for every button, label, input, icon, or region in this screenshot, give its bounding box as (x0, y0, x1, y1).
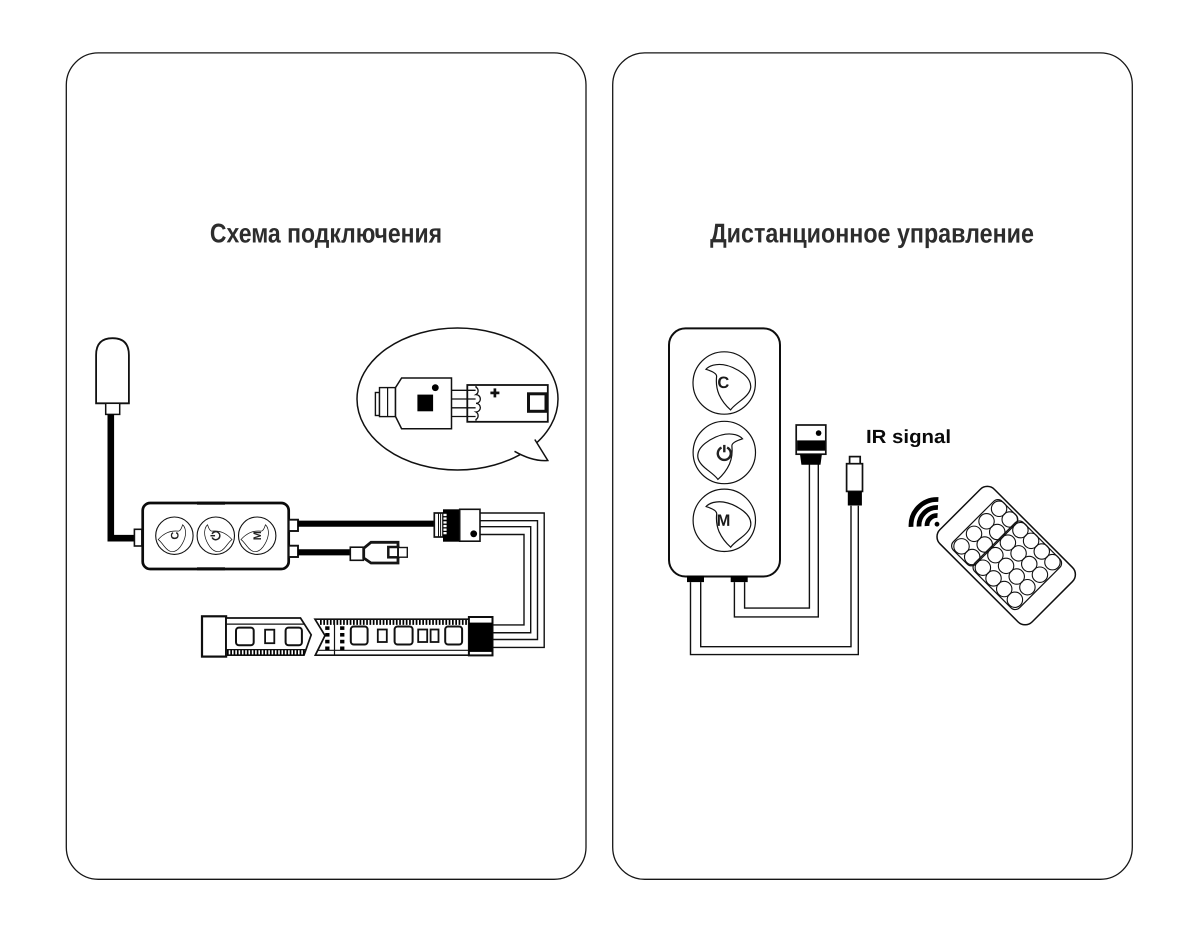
svg-text:M: M (252, 531, 264, 540)
svg-text:IR signal: IR signal (866, 427, 951, 448)
svg-text:C: C (169, 532, 181, 540)
svg-text:M: M (717, 512, 731, 530)
svg-text:C: C (717, 374, 729, 392)
svg-text:Дистанционное управление: Дистанционное управление (710, 218, 1034, 248)
svg-text:Схема подключения: Схема подключения (210, 218, 442, 248)
